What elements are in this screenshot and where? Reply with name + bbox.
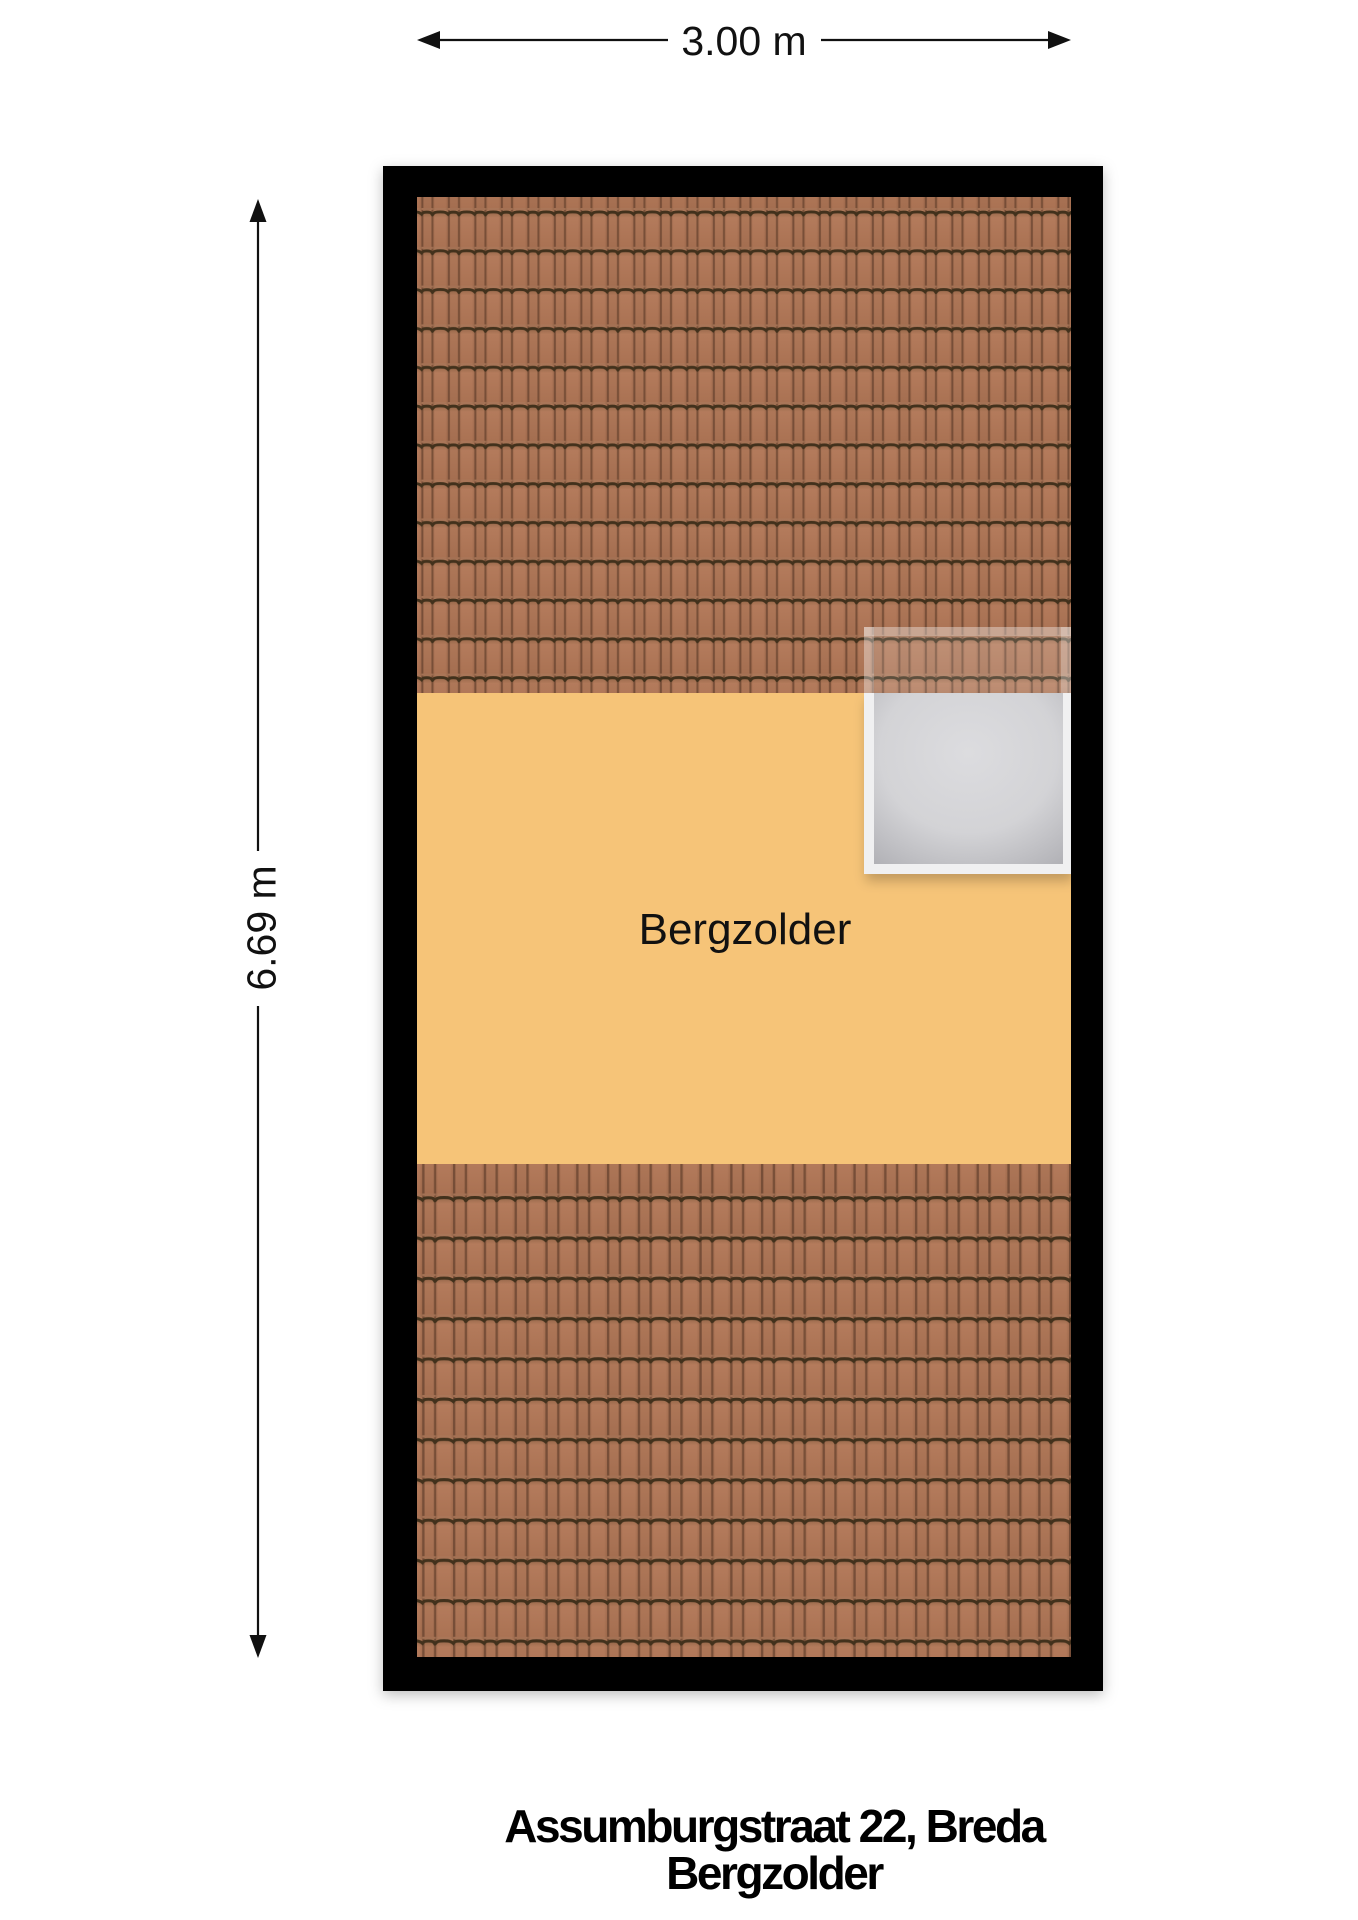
svg-text:Bergzolder: Bergzolder [639,905,852,954]
svg-text:Bergzolder: Bergzolder [666,1847,884,1899]
svg-text:Assumburgstraat 22, Breda: Assumburgstraat 22, Breda [504,1800,1046,1852]
svg-text:3.00 m: 3.00 m [681,18,806,64]
svg-text:6.69 m: 6.69 m [239,865,285,990]
